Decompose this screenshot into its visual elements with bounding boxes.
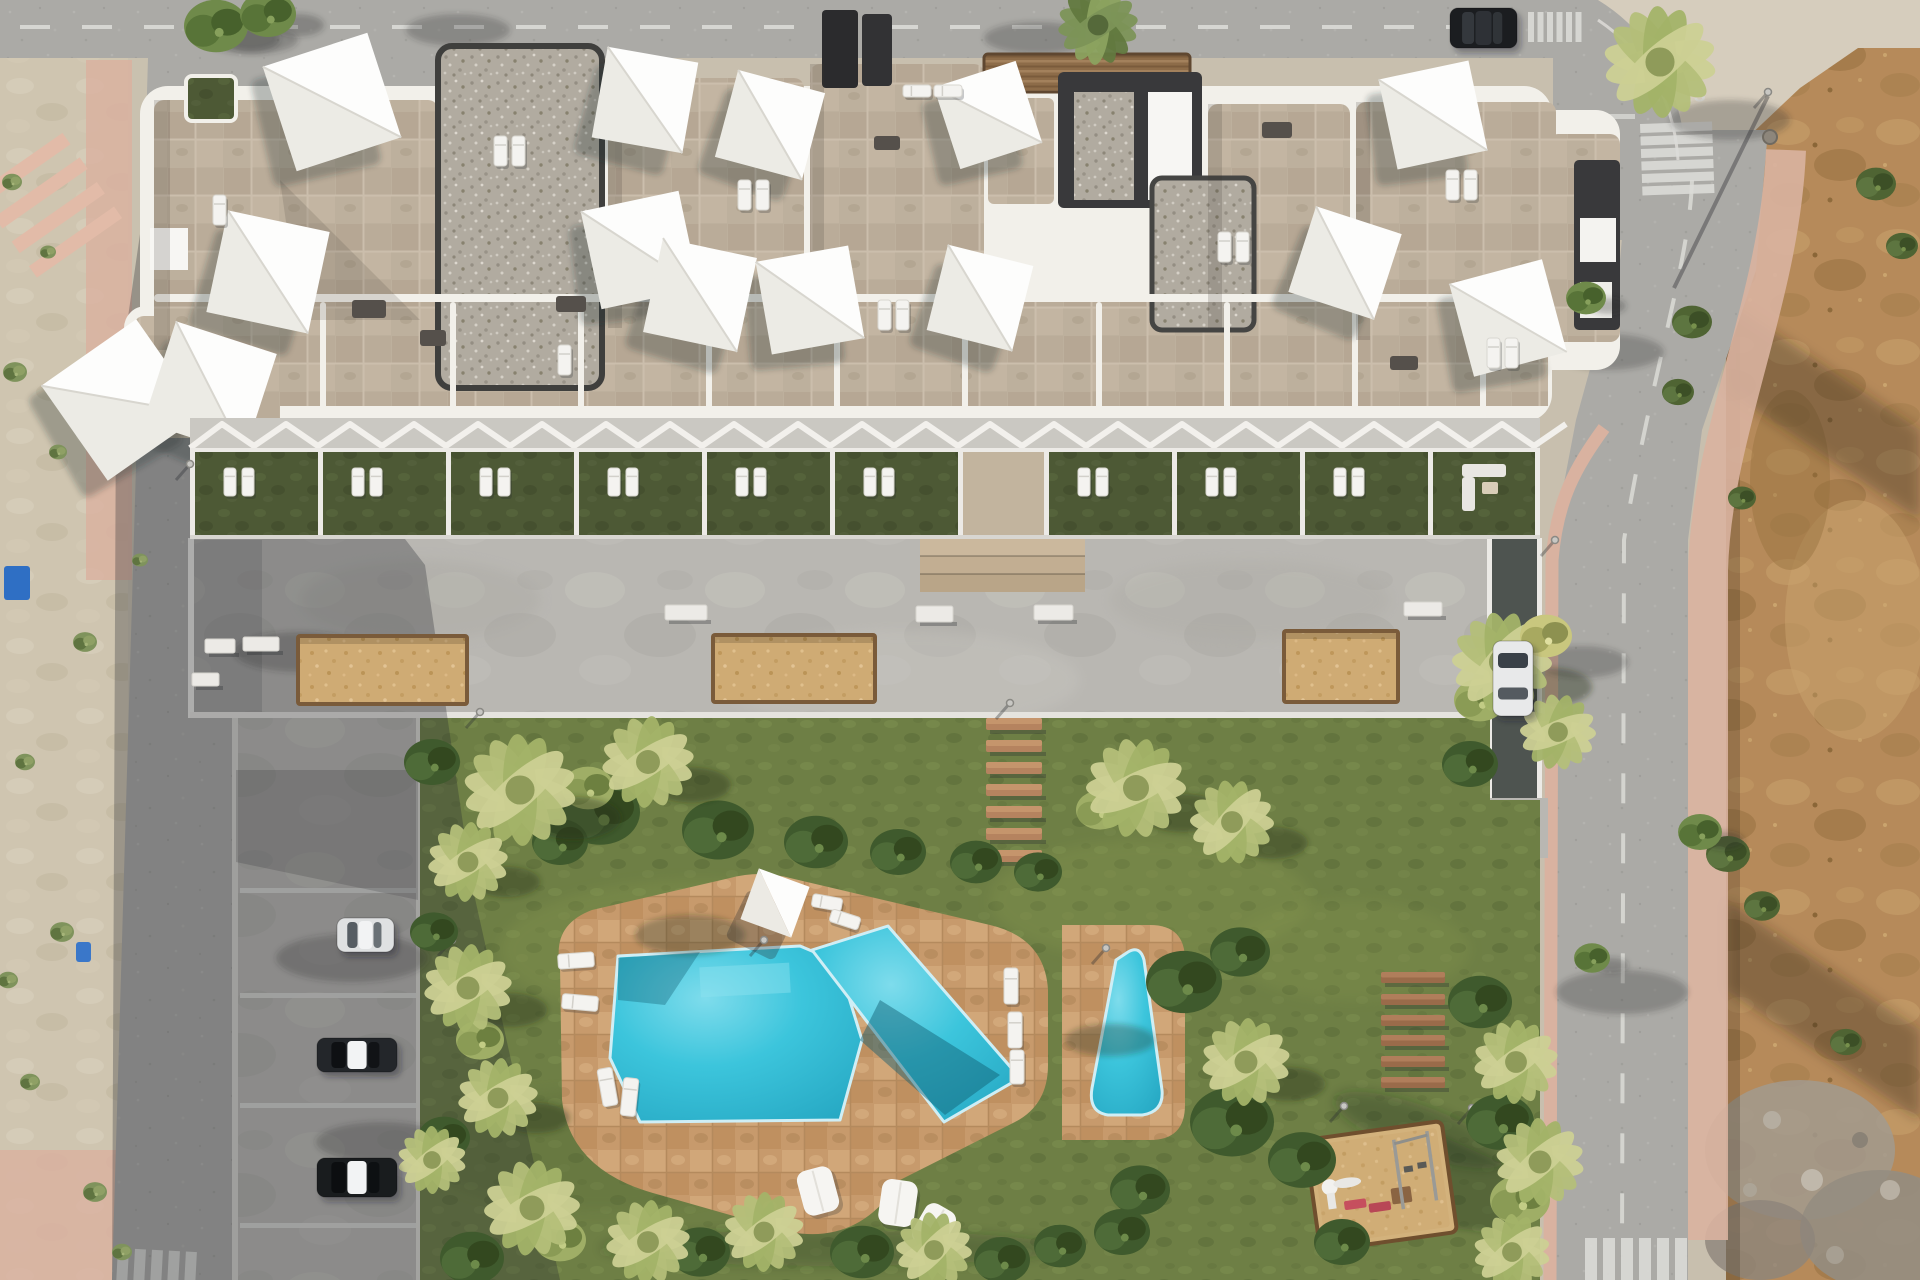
palm-crown (1502, 1242, 1522, 1262)
wooden-step-planks (986, 718, 1046, 866)
car (1493, 641, 1537, 721)
bush (1146, 951, 1222, 1013)
bush-highlight (1727, 855, 1733, 861)
lounger-body (370, 468, 382, 496)
sun-lounger (882, 468, 896, 499)
palm-crown (1529, 1151, 1552, 1174)
terrace-wall (1172, 452, 1177, 538)
palm-crown (1548, 722, 1568, 742)
car (317, 1038, 401, 1077)
terrace-wall (1535, 452, 1540, 538)
car-rear-window (368, 1162, 379, 1193)
bush-highlight (1591, 959, 1596, 964)
car-windshield (331, 1042, 345, 1068)
lounger-body (1206, 468, 1218, 496)
bush-highlight (215, 28, 224, 37)
bush (1210, 927, 1270, 976)
bush (184, 0, 248, 52)
crosswalk-stripe (1603, 1238, 1615, 1280)
bush (3, 362, 27, 382)
bush (1442, 741, 1498, 787)
sun-lounger (1446, 170, 1461, 203)
car-roof (347, 1041, 366, 1069)
lounger-body (1446, 170, 1459, 200)
rooftop-core-box (862, 14, 892, 86)
sun-lounger (1464, 170, 1479, 203)
plank-shadow (1385, 1005, 1449, 1009)
bush (1110, 1165, 1170, 1214)
lounger-body (1096, 468, 1108, 496)
palm-crown (924, 1240, 944, 1260)
sun-lounger (558, 345, 573, 378)
lounger-line (568, 955, 569, 968)
bench (1404, 602, 1442, 616)
bush (682, 800, 754, 859)
lounger-body (213, 195, 226, 225)
bush-highlight (1741, 499, 1745, 503)
bush-highlight (25, 763, 28, 766)
sun-lounger (1224, 468, 1238, 499)
bench (916, 606, 953, 622)
lounger-body (1236, 232, 1249, 262)
lounger-body (561, 993, 598, 1011)
bush (15, 754, 35, 770)
planter-inner-shadow (715, 637, 873, 643)
car-roof (359, 921, 373, 949)
wood-plank-top (1381, 994, 1445, 1000)
bench (243, 637, 279, 651)
plank-shadow (990, 818, 1046, 822)
sun-lounger (561, 993, 600, 1014)
sun-lounger (1078, 468, 1092, 499)
bush-highlight (267, 16, 275, 24)
wood-plank-top (986, 718, 1042, 724)
bush (1268, 1132, 1336, 1188)
wood-plank-top (986, 762, 1042, 768)
plank-shadow (990, 730, 1046, 734)
sun-lounger (1008, 1012, 1024, 1051)
wood-plank-top (1381, 1015, 1445, 1021)
bush (49, 445, 67, 460)
lounger-body (736, 468, 748, 496)
lounger-body (754, 468, 766, 496)
lounger-body (626, 468, 638, 496)
lounger-body (756, 180, 769, 210)
bush (830, 1226, 894, 1278)
palm-crown (488, 1088, 509, 1109)
bush-highlight (62, 933, 65, 936)
sun-lounger (1505, 338, 1520, 371)
bush-highlight (1341, 1244, 1349, 1252)
bush-highlight (1301, 1162, 1311, 1172)
rooftop-core-box (822, 10, 858, 88)
sun-lounger (1096, 468, 1110, 499)
roof-lawn-patch (186, 76, 236, 121)
bush-highlight (85, 643, 88, 646)
bush (950, 841, 1002, 884)
crosswalk-stripe (1557, 12, 1563, 42)
bush-highlight (48, 252, 50, 254)
sun-lounger (213, 195, 228, 228)
terrace-wall (1300, 452, 1305, 538)
shade-sail (756, 246, 865, 355)
bush-highlight (1699, 833, 1705, 839)
bush-highlight (1230, 1125, 1242, 1137)
crosswalk-stripe (1528, 12, 1534, 42)
bench (205, 639, 235, 653)
lounger-body (558, 345, 571, 375)
bench-shadow (920, 622, 957, 626)
sun-lounger (878, 300, 893, 333)
lounger-body (1008, 1012, 1022, 1048)
palm-crown (1235, 1051, 1258, 1074)
bush-highlight (1901, 247, 1905, 251)
car-rear-window (1498, 688, 1528, 700)
sun-lounger (1206, 468, 1220, 499)
sun-lounger (1218, 232, 1233, 265)
bush-highlight (559, 844, 567, 852)
shade-sail (206, 210, 329, 333)
sun-lounger (738, 180, 753, 213)
bush (132, 553, 148, 566)
bush-highlight (1037, 873, 1044, 880)
sun-lounger (756, 180, 771, 213)
bush-highlight (12, 183, 15, 186)
bench-shadow (669, 620, 711, 624)
car-rear-window (1493, 12, 1502, 44)
lounger-body (864, 468, 876, 496)
planter-inner-shadow (300, 638, 465, 644)
sun-lounger (1487, 338, 1502, 371)
bush-highlight (1845, 1043, 1849, 1047)
bush (20, 1074, 40, 1090)
bush-highlight (1677, 393, 1681, 397)
bush-highlight (1875, 185, 1881, 191)
bench (192, 673, 219, 686)
bench-shadow (1408, 616, 1446, 620)
outdoor-sofa (556, 296, 586, 312)
plaza-mottle (1110, 560, 1390, 640)
bush-highlight (58, 453, 61, 456)
lamp-post (1552, 537, 1559, 544)
bush-highlight (1239, 954, 1247, 962)
entrance-steps (920, 538, 1085, 592)
bench (665, 605, 707, 620)
palm-crown (636, 750, 660, 774)
car (317, 1158, 401, 1202)
scene-svg: STOP (0, 0, 1920, 1280)
shade-sail (592, 47, 699, 154)
lamp-post (477, 709, 484, 716)
car-roof (1475, 11, 1491, 45)
lounger-body (1004, 968, 1018, 1004)
bush-highlight (587, 790, 594, 797)
bush-highlight (975, 864, 982, 871)
crosswalk-stripe (1576, 12, 1582, 42)
bush (40, 245, 56, 258)
palm-crown (458, 852, 479, 873)
outdoor-sofa (874, 136, 900, 150)
bush (784, 816, 848, 868)
tree-shadow-on-road (406, 14, 510, 46)
bush (1830, 1029, 1862, 1055)
bush (73, 632, 97, 652)
bush-highlight (433, 933, 440, 940)
lounger-body (242, 468, 254, 496)
wood-plank-top (986, 784, 1042, 790)
wood-plank-top (986, 740, 1042, 746)
sun-lounger (896, 300, 911, 333)
sun-lounger (498, 468, 512, 499)
sun-lounger (480, 468, 494, 499)
sun-lounger (1352, 468, 1366, 499)
crosswalk-stripe (1621, 1238, 1633, 1280)
bush-highlight (897, 854, 905, 862)
bush-highlight (861, 1254, 870, 1263)
bush (1314, 1219, 1370, 1265)
bush-highlight (1691, 323, 1697, 329)
lounger-body (903, 85, 931, 97)
bush-highlight (15, 373, 18, 376)
lounger-body (224, 468, 236, 496)
lounger-body (934, 85, 962, 97)
tree-shadow-on-road (1556, 970, 1688, 1014)
sun-lounger (1334, 468, 1348, 499)
sun-lounger (1236, 232, 1251, 265)
bush (1744, 891, 1780, 921)
bush (404, 739, 460, 785)
sun-lounger (608, 468, 622, 499)
car-rear-window (373, 922, 381, 948)
lounger-body (494, 136, 507, 166)
bush (1886, 233, 1918, 259)
bush (1678, 814, 1722, 850)
bush-highlight (815, 844, 824, 853)
terrace-wall (1428, 452, 1433, 538)
sun-lounger (512, 136, 527, 169)
palm-crown (423, 1151, 441, 1169)
outdoor-sofa (1390, 356, 1418, 370)
bench-shadow (209, 653, 239, 657)
lounger-body (882, 468, 894, 496)
palm-crown (457, 977, 480, 1000)
bush (1662, 379, 1694, 405)
lounger-body (352, 468, 364, 496)
ground-terraces (190, 418, 1566, 539)
lounger-body (498, 468, 510, 496)
palm-crown (505, 775, 534, 804)
terrace-wall (446, 452, 451, 538)
shade-sail (643, 238, 757, 352)
plank-shadow (1385, 983, 1449, 987)
car-rear-window (368, 1042, 379, 1068)
bush (1856, 168, 1896, 201)
sun-lounger (370, 468, 384, 499)
crosswalk-stripe (1538, 12, 1544, 42)
sun-lounger (864, 468, 878, 499)
sun-lounger (903, 85, 933, 100)
lounger-body (1010, 1050, 1024, 1084)
car-windshield (347, 922, 357, 948)
bush-highlight (30, 1083, 33, 1086)
bush (112, 1244, 132, 1260)
terrace-bottom-wall (190, 535, 1540, 539)
plank-shadow (990, 774, 1046, 778)
car (337, 918, 398, 957)
bush-highlight (1059, 1248, 1066, 1255)
lamp-post (1341, 1103, 1348, 1110)
lounger-body (512, 136, 525, 166)
lamp-post (187, 461, 194, 468)
shade-sail (1378, 60, 1487, 169)
bush-highlight (1499, 1124, 1509, 1134)
bush-highlight (1761, 907, 1766, 912)
bush-highlight (1519, 1202, 1527, 1210)
car (1450, 8, 1521, 53)
planter-sand (300, 638, 465, 702)
terrace-wall (318, 452, 323, 538)
crosswalk-stripe (1547, 12, 1553, 42)
plank-shadow (1385, 1046, 1449, 1050)
planter-sand (715, 637, 873, 700)
palm-crown (1505, 1051, 1527, 1073)
bush (2, 174, 22, 190)
lamp-post (1007, 700, 1014, 707)
bush (1448, 976, 1512, 1028)
outdoor-sofa (1262, 122, 1292, 138)
plank-shadow (990, 752, 1046, 756)
lounger-body (1224, 468, 1236, 496)
bush-highlight (1545, 638, 1552, 645)
wood-plank-top (986, 828, 1042, 834)
lounger-body (896, 300, 909, 330)
lounger-body (1464, 170, 1477, 200)
lounger-body (1505, 338, 1518, 368)
lounger-body (878, 300, 891, 330)
plank-shadow (1385, 1088, 1449, 1092)
bench-shadow (1038, 620, 1077, 624)
planter-inner-shadow (1286, 633, 1396, 639)
sun-lounger (736, 468, 750, 499)
bush (1574, 943, 1610, 973)
car-body (1493, 641, 1533, 716)
terrace-wall (574, 452, 579, 538)
sun-lounger (754, 468, 768, 499)
crosswalk-stripe (1566, 12, 1572, 42)
plank-shadow (990, 840, 1046, 844)
recycling-bin (76, 942, 91, 962)
bush-highlight (1139, 1192, 1147, 1200)
bush-highlight (1121, 1234, 1129, 1242)
sun-lounger (224, 468, 238, 499)
crosswalk-stripe (1657, 1238, 1669, 1280)
sun-lounger (494, 136, 509, 169)
left-pink-path-bottom (0, 1150, 122, 1280)
palm-crown (1123, 775, 1149, 801)
gravel-roof-block (438, 46, 602, 388)
outdoor-sofa (352, 300, 386, 318)
bush (870, 829, 926, 875)
bush-highlight (431, 764, 439, 772)
bush (1094, 1209, 1150, 1255)
outdoor-sofa (420, 330, 446, 346)
bush-highlight (1182, 984, 1193, 995)
bush-highlight (471, 1260, 480, 1269)
bush-highlight (1001, 1262, 1009, 1270)
palm-crown (1645, 47, 1674, 76)
bush (1728, 487, 1756, 510)
terrace-wall (830, 452, 835, 538)
bush (1014, 852, 1062, 891)
sand-planter (711, 633, 877, 704)
bench (1034, 605, 1073, 620)
wood-plank-top (1381, 972, 1445, 978)
bush-highlight (1469, 766, 1477, 774)
lamp-post (1103, 945, 1110, 952)
sun-lounger (242, 468, 256, 499)
lounger-body (738, 180, 751, 210)
lounger-body (1078, 468, 1090, 496)
bush-highlight (95, 1193, 98, 1196)
bush-highlight (717, 832, 727, 842)
palm-shadow-on-small-deck (1065, 1024, 1155, 1056)
entrance-corridor (958, 452, 1044, 538)
plank-shadow (1385, 1026, 1449, 1030)
bush (1672, 306, 1712, 339)
crosswalk-stripe (1585, 1238, 1597, 1280)
bush-highlight (122, 1253, 125, 1256)
plank-shadow (990, 796, 1046, 800)
sun-lounger (934, 85, 964, 100)
bush-highlight (699, 1254, 707, 1262)
car-windshield (1462, 12, 1474, 44)
lamp-post (1765, 89, 1772, 96)
planter-sand (1286, 633, 1396, 700)
sun-lounger (558, 952, 597, 973)
bush (1566, 282, 1606, 315)
manhole-cover (1763, 130, 1777, 144)
bush-highlight (140, 560, 142, 562)
plank-shadow (1385, 1067, 1449, 1071)
bush-highlight (8, 981, 11, 984)
lounger-body (608, 468, 620, 496)
bench-shadow (247, 651, 283, 655)
lounger-body (1334, 468, 1346, 496)
sand-planter (1282, 629, 1400, 704)
bush (83, 1182, 107, 1202)
bush (410, 912, 458, 951)
sun-lounger (1004, 968, 1020, 1007)
bush-highlight (479, 1041, 486, 1048)
palm-crown (637, 1231, 659, 1253)
car-roof (347, 1161, 366, 1194)
sand-planter (296, 634, 469, 706)
terrace-wall (702, 452, 707, 538)
palm-crown (520, 1196, 545, 1221)
sun-lounger (1010, 1050, 1026, 1087)
lounger-body (1352, 468, 1364, 496)
bush (1034, 1225, 1086, 1268)
aerial-render: STOP (0, 0, 1920, 1280)
lounger-body (1218, 232, 1231, 262)
wood-plank-top (1381, 1056, 1445, 1062)
wood-plank-top (1381, 1077, 1445, 1083)
lounger-body (480, 468, 492, 496)
wood-plank-top (1381, 1035, 1445, 1041)
bench-shadow (196, 686, 223, 690)
bush (50, 922, 74, 942)
car-windshield (331, 1162, 345, 1193)
